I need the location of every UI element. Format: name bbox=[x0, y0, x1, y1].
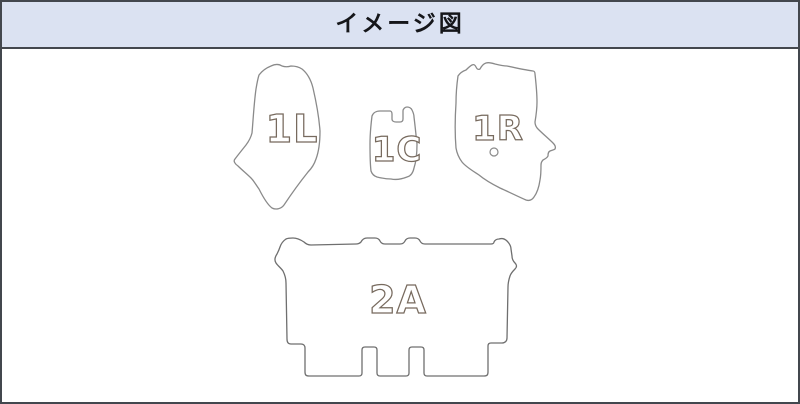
mat-diagram-canvas: 1L 1C 1R 2A bbox=[2, 49, 798, 402]
mat-label-front-center: 1C bbox=[372, 130, 423, 170]
mat-label-front-left: 1L bbox=[266, 107, 319, 151]
diagram-title: イメージ図 bbox=[335, 13, 465, 36]
mat-label-front-right: 1R bbox=[472, 109, 524, 149]
mat-diagram-svg: 1L 1C 1R 2A bbox=[2, 49, 798, 402]
grommet-hole-front-right bbox=[490, 148, 498, 156]
mat-label-second-row: 2A bbox=[369, 278, 427, 322]
image-diagram-panel: イメージ図 1L 1C 1R 2A bbox=[0, 0, 800, 404]
diagram-header: イメージ図 bbox=[2, 2, 798, 49]
